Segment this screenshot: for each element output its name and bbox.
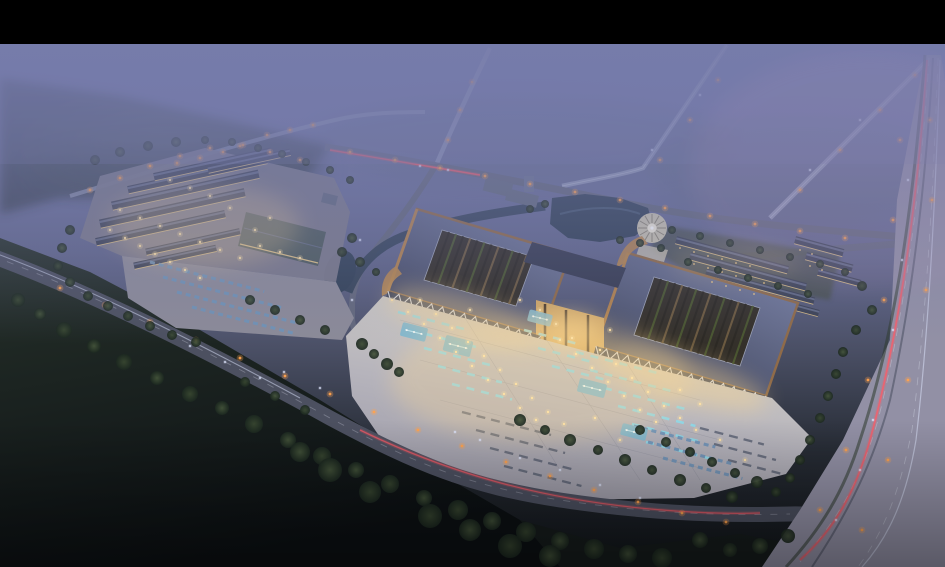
tree xyxy=(150,371,164,385)
plaza-light xyxy=(499,369,501,371)
plaza-light xyxy=(455,351,457,353)
plaza-light xyxy=(594,417,596,419)
tree xyxy=(823,391,833,401)
tree xyxy=(240,377,250,387)
street-light xyxy=(867,379,870,382)
plaza-light xyxy=(679,389,681,391)
car xyxy=(259,377,261,379)
street-light xyxy=(239,357,242,360)
tree xyxy=(369,349,379,359)
plaza-light xyxy=(599,349,601,351)
plaza-light xyxy=(471,365,473,367)
plaza-light xyxy=(631,377,633,379)
plaza-light xyxy=(515,383,517,385)
plaza-light xyxy=(487,379,489,381)
plaza-light xyxy=(639,409,641,411)
plaza-light xyxy=(519,407,521,409)
tree xyxy=(394,367,404,377)
car xyxy=(224,361,226,363)
tree xyxy=(300,405,310,415)
street-light xyxy=(329,393,332,396)
plaza-light xyxy=(503,393,505,395)
plaza-light xyxy=(647,391,649,393)
street-light xyxy=(907,379,910,382)
plaza-light xyxy=(615,363,617,365)
tree xyxy=(838,347,848,357)
tree xyxy=(182,386,198,402)
car xyxy=(189,345,191,347)
street-light xyxy=(373,411,376,414)
plaza-light xyxy=(663,405,665,407)
tree xyxy=(116,354,132,370)
plaza-light xyxy=(699,403,701,405)
tree xyxy=(831,369,841,379)
plaza-light xyxy=(623,395,625,397)
letterbox-top xyxy=(0,0,945,44)
bottom-vignette xyxy=(0,420,945,567)
plaza-light xyxy=(547,411,549,413)
scene-svg xyxy=(0,0,945,567)
tree xyxy=(215,401,229,415)
plaza-light xyxy=(679,417,681,419)
plaza-light xyxy=(483,355,485,357)
tree xyxy=(381,358,393,370)
plaza-light xyxy=(575,353,577,355)
aerial-render-image xyxy=(0,0,945,567)
car xyxy=(319,387,321,389)
plaza-light xyxy=(607,381,609,383)
tree xyxy=(270,391,280,401)
plaza-light xyxy=(591,367,593,369)
plaza-light xyxy=(531,397,533,399)
street-light xyxy=(284,375,287,378)
